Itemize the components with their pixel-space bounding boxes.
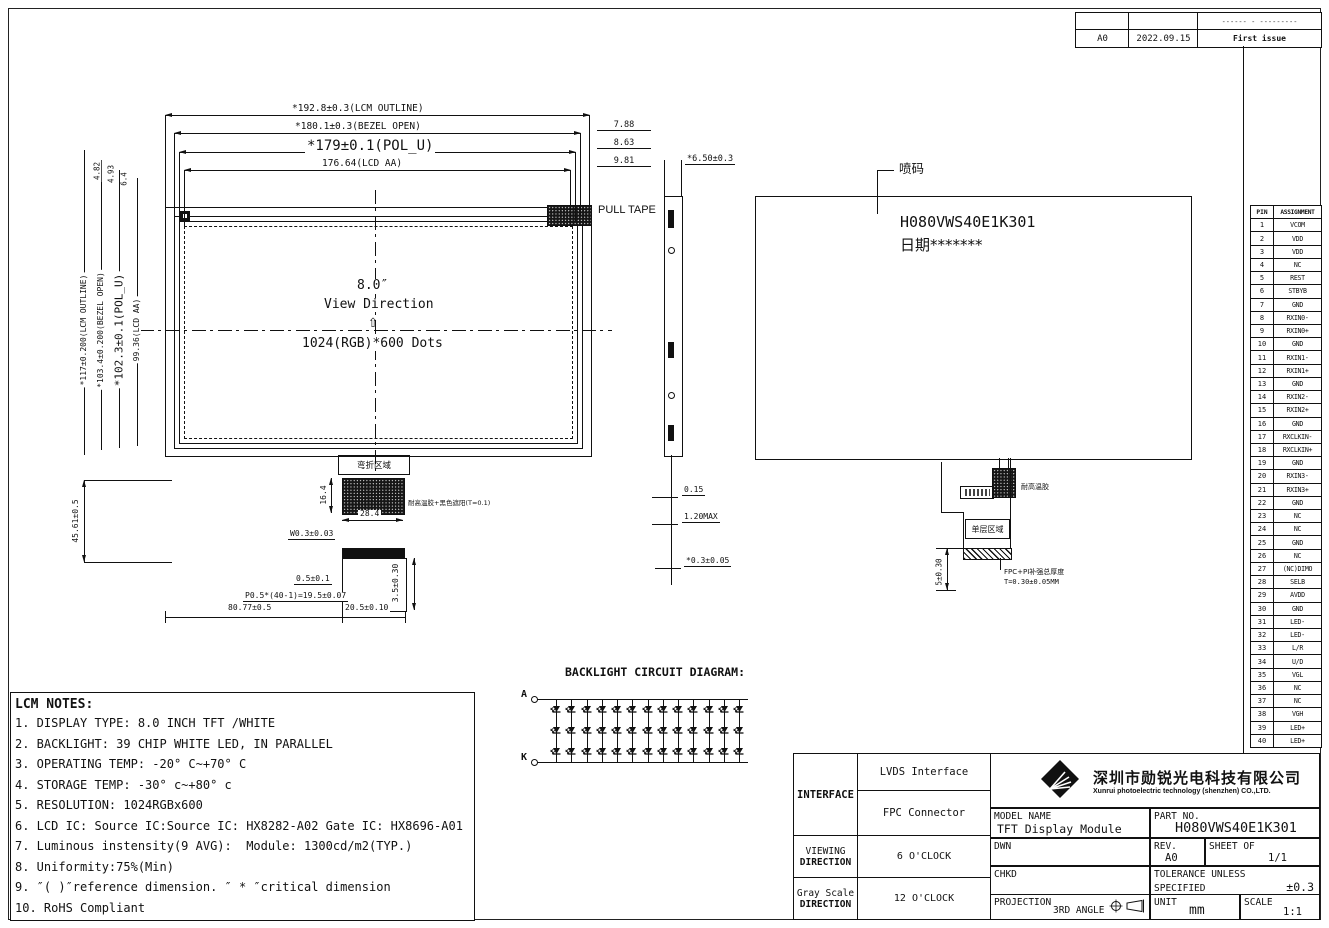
unit-value: mm (1189, 903, 1205, 918)
dimension-line (165, 115, 590, 116)
model-name-value: TFT Display Module (997, 822, 1122, 836)
scale-cell: SCALE 1:1 (1240, 894, 1320, 920)
led-symbol (596, 702, 609, 717)
side-view-body (664, 196, 683, 457)
connector-type: FPC Connector (883, 807, 965, 819)
anode-label: A (519, 689, 529, 700)
extension-line (664, 160, 665, 196)
pin-assignment: NC (1274, 259, 1321, 271)
dim-top-left-3: 6.4 (120, 170, 128, 188)
pin-number: 36 (1251, 682, 1274, 694)
pin-assignment: VGL (1274, 669, 1321, 681)
single-layer-label: 单层区域 (972, 524, 1004, 535)
stiffener-note-1: FPC+PI补强总厚度 (1002, 569, 1066, 577)
led-symbol (611, 744, 624, 759)
fpc-outline-line (963, 512, 964, 548)
unit-label: UNIT (1154, 897, 1177, 908)
dim-right-2: 8.63 (597, 139, 651, 149)
extension-line (575, 152, 576, 221)
notes-list: 1. DISPLAY TYPE: 8.0 INCH TFT /WHITE2. B… (11, 713, 474, 918)
pin-assignment: RXIN2- (1274, 391, 1321, 403)
pin-row: 20RXIN3- (1251, 469, 1321, 482)
pin-number: 32 (1251, 629, 1274, 641)
dim-lcm-outline-v: *117±0.200(LCM OUTLINE) (80, 273, 88, 388)
side-view-hole (668, 247, 675, 254)
extension-line (165, 115, 166, 207)
pin-number: 34 (1251, 655, 1274, 667)
pin-number: 17 (1251, 431, 1274, 443)
pin-number: 19 (1251, 457, 1274, 469)
view-direction-arrow-icon: ⇧ (366, 313, 380, 332)
leader-line (652, 497, 678, 498)
led-symbol (581, 702, 594, 717)
sheet-label: SHEET OF (1209, 841, 1255, 852)
led-symbol (687, 702, 700, 717)
dimension-line (342, 520, 403, 521)
dimension-line (331, 478, 332, 513)
dimension-line (184, 170, 571, 171)
pin-row: 5REST (1251, 271, 1321, 284)
pin-assignment: LED+ (1274, 722, 1321, 734)
pin1-corner-mark (180, 211, 190, 222)
marking-part-no: H080VWS40E1K301 (898, 214, 1037, 231)
dim-205: 20.5±0.10 (343, 604, 390, 613)
pin-number: 2 (1251, 232, 1274, 244)
led-symbol (550, 723, 563, 738)
led-symbol (657, 702, 670, 717)
pin-row: 32LED- (1251, 628, 1321, 641)
pin-assignment: REST (1274, 272, 1321, 284)
pin-number: 7 (1251, 299, 1274, 311)
dimension-line (947, 548, 948, 590)
backlight-title: BACKLIGHT CIRCUIT DIAGRAM: (563, 666, 747, 679)
revision-description: First issue (1197, 29, 1322, 48)
viewing-label-1: VIEWING (805, 846, 845, 857)
cathode-label: K (519, 752, 529, 763)
pin-number: 37 (1251, 695, 1274, 707)
viewing-label-2: DIRECTION (800, 857, 851, 868)
dim-aa-h: 176.64(LCD AA) (320, 159, 404, 169)
rev-value: A0 (1165, 852, 1178, 864)
pin-number: 31 (1251, 616, 1274, 628)
resolution-label: 1024(RGB)*600 Dots (300, 337, 445, 351)
extension-line (936, 548, 963, 549)
stiffener-note-2: T=0.30±0.05MM (1002, 579, 1061, 587)
led-symbol (687, 744, 700, 759)
pin-assignment: RXIN1+ (1274, 365, 1321, 377)
pin-number: 1 (1251, 219, 1274, 231)
revision-date: 2022.09.15 (1128, 29, 1199, 48)
pin-number: 12 (1251, 365, 1274, 377)
pin-row: 18RXCLKIN+ (1251, 443, 1321, 456)
pin-assignment: NC (1274, 695, 1321, 707)
dim-top-left-1: 4.82 (93, 160, 101, 182)
led-symbol (672, 744, 685, 759)
pin-number: 28 (1251, 576, 1274, 588)
note-line: 10. RoHS Compliant (15, 898, 474, 919)
pin-assignment: LED- (1274, 629, 1321, 641)
pin-number: 3 (1251, 246, 1274, 258)
led-symbol (672, 702, 685, 717)
viewing-value-cell: 6 O'CLOCK (857, 835, 991, 878)
scale-label: SCALE (1244, 897, 1273, 908)
pin-assignment: NC (1274, 682, 1321, 694)
pin-row: 36NC (1251, 681, 1321, 694)
pin-row: 10GND (1251, 337, 1321, 350)
pin-assignment-table: PIN ASSIGNMENT 1VCOM2VDD3VDD4NC5REST6STB… (1250, 205, 1322, 748)
led-string (550, 699, 563, 762)
bend-area-label: 弯折区域 (357, 459, 391, 471)
pin-assignment: U/D (1274, 655, 1321, 667)
fpc-outline-line (1010, 458, 1011, 548)
note-line: 9. ″( )″reference dimension. ″ * ″critic… (15, 877, 474, 898)
pin-number: 15 (1251, 404, 1274, 416)
pin-assignment: LED- (1274, 616, 1321, 628)
pin-assignment: L/R (1274, 642, 1321, 654)
pin-row: 39LED+ (1251, 721, 1321, 734)
rev-cell: REV. A0 (1150, 838, 1205, 866)
interface-label-cell: INTERFACE (793, 753, 858, 836)
fpc-outline-line (941, 512, 963, 513)
pin-assignment: RXCLKIN- (1274, 431, 1321, 443)
rev-label: REV. (1154, 841, 1177, 852)
callout-leader (877, 170, 878, 214)
pin-row: 2VDD (1251, 231, 1321, 244)
fpc-outline-line (941, 462, 942, 512)
pin-assignment: RXIN0- (1274, 312, 1321, 324)
revision-rev: A0 (1075, 29, 1130, 48)
pin-number: 18 (1251, 444, 1274, 456)
dwn-cell: DWN (990, 838, 1150, 866)
cathode-rail (537, 762, 748, 763)
pin-assignment: (NC)DIMO (1274, 563, 1321, 575)
dimension-line (414, 558, 415, 610)
pin-row: 40LED+ (1251, 734, 1321, 747)
dim-left-bottom: 45.61±0.5 (72, 497, 80, 544)
viewing-direction-cell: VIEWING DIRECTION (793, 835, 858, 878)
note-line: 8. Uniformity:75%(Min) (15, 857, 474, 878)
led-symbol (733, 723, 746, 738)
pin-row: 24NC (1251, 522, 1321, 535)
led-symbol (565, 744, 578, 759)
pin-assignment: RXIN3+ (1274, 484, 1321, 496)
pin-number: 24 (1251, 523, 1274, 535)
led-symbol (687, 723, 700, 738)
pin-row: 15RXIN2+ (1251, 403, 1321, 416)
drawing-sheet: ------ - --------- A0 2022.09.15 First i… (0, 0, 1329, 928)
pin-number: 20 (1251, 470, 1274, 482)
pin-number: 35 (1251, 669, 1274, 681)
extension-line (681, 160, 682, 196)
single-layer-box: 单层区域 (965, 519, 1010, 539)
pin-assignment: GND (1274, 497, 1321, 509)
pin-row: 6STBYB (1251, 284, 1321, 297)
pin-row: 28SELB (1251, 575, 1321, 588)
pin-number: 14 (1251, 391, 1274, 403)
pin-row: 23NC (1251, 509, 1321, 522)
viewing-value: 6 O'CLOCK (897, 851, 951, 862)
led-symbol (672, 723, 685, 738)
interface-label: INTERFACE (797, 789, 854, 801)
pin-number: 39 (1251, 722, 1274, 734)
dim-35: 3.5±0.30 (392, 562, 400, 605)
dim-pitch: P0.5*(40-1)=19.5±0.07 (243, 592, 348, 602)
third-angle-projection-icon (1109, 898, 1145, 917)
led-symbol (718, 723, 731, 738)
pull-tape-label: PULL TAPE (596, 204, 658, 216)
led-symbol (596, 744, 609, 759)
note-line: 4. STORAGE TEMP: -30° c~+80° c (15, 775, 474, 796)
pin-number: 25 (1251, 536, 1274, 548)
pin-row: 35VGL (1251, 668, 1321, 681)
leader-line (652, 524, 678, 525)
pin-row: 34U/D (1251, 654, 1321, 667)
gray-scale-cell: Gray Scale DIRECTION (793, 877, 858, 920)
pin-number: 10 (1251, 338, 1274, 350)
led-string (565, 699, 578, 762)
led-symbol (596, 723, 609, 738)
led-string (596, 699, 609, 762)
led-symbol (565, 723, 578, 738)
label-sticker (960, 486, 994, 499)
led-symbol (642, 744, 655, 759)
pin-assignment: VGH (1274, 708, 1321, 720)
pin-number: 13 (1251, 378, 1274, 390)
led-symbol (703, 723, 716, 738)
pin-table-header: PIN ASSIGNMENT (1251, 206, 1321, 218)
pin-row: 25GND (1251, 535, 1321, 548)
dimension-line (84, 480, 85, 562)
pin-assignment: RXIN2+ (1274, 404, 1321, 416)
dim-bezel-h: *180.1±0.3(BEZEL OPEN) (293, 122, 423, 132)
pin-assignment: VDD (1274, 246, 1321, 258)
pin-number: 9 (1251, 325, 1274, 337)
led-symbol (626, 702, 639, 717)
pin-row: 1VCOM (1251, 218, 1321, 231)
pin-number: 5 (1251, 272, 1274, 284)
note-line: 1. DISPLAY TYPE: 8.0 INCH TFT /WHITE (15, 713, 474, 734)
led-string (672, 699, 685, 762)
inkjet-code-callout: 喷码 (897, 162, 926, 176)
pin-number: 8 (1251, 312, 1274, 324)
pin-number: 38 (1251, 708, 1274, 720)
pin-assignment: GND (1274, 536, 1321, 548)
pin-row: 9RXIN0+ (1251, 324, 1321, 337)
pin-assignment: GND (1274, 338, 1321, 350)
dim-w03: W0.3±0.03 (288, 530, 335, 540)
pin-row: 22GND (1251, 496, 1321, 509)
dwn-label: DWN (994, 841, 1011, 852)
dim-fpc-w: 28.4 (358, 510, 381, 519)
extension-line (84, 480, 172, 481)
back-tape-hatch (992, 468, 1016, 498)
dim-015: 0.15 (682, 486, 705, 496)
pin-assignment: LED+ (1274, 735, 1321, 747)
pin-number: 33 (1251, 642, 1274, 654)
led-symbol (626, 744, 639, 759)
extension-line (405, 611, 406, 623)
dim-lcm-outline-h: *192.8±0.3(LCM OUTLINE) (290, 104, 426, 114)
pin-number: 22 (1251, 497, 1274, 509)
pin-assignment: VCOM (1274, 219, 1321, 231)
led-string (687, 699, 700, 762)
pin-number: 11 (1251, 351, 1274, 363)
display-size-label: 8.0″ (355, 279, 390, 293)
extension-line (342, 611, 343, 623)
side-view-slot (668, 342, 674, 358)
side-view-hole (668, 392, 675, 399)
dim-right-3: 9.81 (597, 157, 651, 167)
interface-type: LVDS Interface (880, 766, 969, 778)
led-string (611, 699, 624, 762)
pin-row: 16GND (1251, 417, 1321, 430)
side-view-slot (668, 425, 674, 441)
pin-number: 4 (1251, 259, 1274, 271)
led-symbol (642, 723, 655, 738)
side-view-slot (668, 210, 674, 228)
led-grid (550, 699, 746, 762)
pin-row: 4NC (1251, 258, 1321, 271)
leader-line (1000, 558, 1001, 570)
lcm-notes-box: LCM NOTES: 1. DISPLAY TYPE: 8.0 INCH TFT… (10, 692, 475, 921)
fpc-tape-note: 耐高温胶+黑色遮阳(T=0.1) (406, 500, 492, 507)
sheet-value: 1/1 (1268, 852, 1287, 864)
pin-row: 12RXIN1+ (1251, 364, 1321, 377)
led-symbol (703, 702, 716, 717)
extension-line (184, 170, 185, 226)
company-name-en: Xunrui photoelectric technology (shenzhe… (1093, 788, 1301, 795)
pin-row: 8RXIN0- (1251, 311, 1321, 324)
view-direction-label: View Direction (322, 298, 436, 312)
tolerance-cell: TOLERANCE UNLESS SPECIFIED ±0.3 (1150, 866, 1320, 896)
pin-assignment: NC (1274, 550, 1321, 562)
company-name-group: 深圳市勋锐光电科技有限公司 Xunrui photoelectric techn… (1093, 767, 1301, 795)
pin-row: 27(NC)DIMO (1251, 562, 1321, 575)
marking-date: 日期******* (898, 237, 985, 254)
dim-pol-h: *179±0.1(POL_U) (305, 139, 435, 154)
extension-line (84, 562, 172, 563)
pin-row: 31LED- (1251, 615, 1321, 628)
extension-line (570, 170, 571, 226)
pin-row: 11RXIN1- (1251, 350, 1321, 363)
dim-aa-v: 99.36(LCD AA) (133, 297, 141, 364)
pin-assignment: NC (1274, 523, 1321, 535)
pin-header-assignment: ASSIGNMENT (1274, 206, 1321, 218)
dim-thickness: *6.50±0.3 (685, 155, 735, 165)
led-symbol (550, 744, 563, 759)
dim-pol-v: *102.3±0.1(POL_U) (114, 272, 125, 389)
projection-cell: PROJECTION 3RD ANGLE (990, 894, 1150, 920)
led-string (626, 699, 639, 762)
pin-row: 37NC (1251, 694, 1321, 707)
pin-assignment: RXIN3- (1274, 470, 1321, 482)
led-symbol (581, 744, 594, 759)
pin-row: 3VDD (1251, 245, 1321, 258)
projection-value: 3RD ANGLE (1053, 905, 1104, 916)
pin-assignment: GND (1274, 378, 1321, 390)
dim-8077: 80.77±0.5 (226, 604, 273, 613)
chkd-label: CHKD (994, 869, 1017, 880)
dimension-line (165, 617, 406, 618)
note-line: 6. LCD IC: Source IC:Source IC: HX8282-A… (15, 816, 474, 837)
chkd-cell: CHKD (990, 866, 1150, 896)
pin-assignment: RXIN1- (1274, 351, 1321, 363)
connector-type-cell: FPC Connector (857, 790, 991, 836)
pin-number: 23 (1251, 510, 1274, 522)
led-symbol (611, 723, 624, 738)
gray-label-2: DIRECTION (800, 899, 851, 910)
model-name-label: MODEL NAME (994, 811, 1051, 822)
note-line: 5. RESOLUTION: 1024RGBx600 (15, 795, 474, 816)
pin-number: 6 (1251, 285, 1274, 297)
pin-row: 17RXCLKIN- (1251, 430, 1321, 443)
fpc-connector-strip (342, 548, 405, 558)
pin-row: 13GND (1251, 377, 1321, 390)
pin-number: 26 (1251, 550, 1274, 562)
pin-assignment: GND (1274, 457, 1321, 469)
pin-row: 30GND (1251, 602, 1321, 615)
led-string (733, 699, 746, 762)
pin-row: 38VGH (1251, 707, 1321, 720)
gray-value: 12 O'CLOCK (894, 893, 954, 904)
pin-header-pin: PIN (1251, 206, 1274, 218)
tolerance-value: ±0.3 (1286, 880, 1314, 894)
unit-cell: UNIT mm (1150, 894, 1240, 920)
pin-row: 21RXIN3+ (1251, 483, 1321, 496)
pin-number: 21 (1251, 484, 1274, 496)
tolerance-label-2: SPECIFIED (1154, 883, 1205, 894)
pin-number: 40 (1251, 735, 1274, 747)
tolerance-label-1: TOLERANCE UNLESS (1154, 869, 1246, 880)
interface-type-cell: LVDS Interface (857, 753, 991, 791)
model-name-cell: MODEL NAME TFT Display Module (990, 808, 1150, 838)
pin-assignment: GND (1274, 418, 1321, 430)
pin-assignment: GND (1274, 603, 1321, 615)
extension-line (179, 152, 180, 221)
margin-line (1243, 46, 1244, 753)
dim-05: 0.5±0.1 (294, 575, 332, 585)
scale-value: 1:1 (1283, 906, 1302, 918)
led-symbol (581, 723, 594, 738)
extension-line (174, 133, 175, 216)
notes-title: LCM NOTES: (11, 693, 474, 713)
pin-row: 29AVDD (1251, 588, 1321, 601)
led-string (703, 699, 716, 762)
led-symbol (718, 744, 731, 759)
extension-line (589, 115, 590, 207)
company-logo-cell: 深圳市勋锐光电科技有限公司 Xunrui photoelectric techn… (990, 753, 1320, 808)
callout-leader (877, 170, 894, 171)
pin-number: 16 (1251, 418, 1274, 430)
led-symbol (626, 723, 639, 738)
dimension-line (174, 133, 581, 134)
pin-assignment: VDD (1274, 232, 1321, 244)
led-string (581, 699, 594, 762)
led-symbol (565, 702, 578, 717)
led-symbol (657, 744, 670, 759)
pin-row: 19GND (1251, 456, 1321, 469)
company-name-cn: 深圳市勋锐光电科技有限公司 (1093, 767, 1301, 788)
gray-label-1: Gray Scale (797, 888, 854, 899)
stiffener-hatch (963, 548, 1012, 560)
pin-row: 14RXIN2- (1251, 390, 1321, 403)
extension-line (165, 611, 166, 623)
part-no-value: H080VWS40E1K301 (1175, 820, 1297, 836)
pin-assignment: RXIN0+ (1274, 325, 1321, 337)
leader-line (655, 568, 681, 569)
side-view-fpc-tail (671, 455, 672, 585)
pin-row: 7GND (1251, 298, 1321, 311)
